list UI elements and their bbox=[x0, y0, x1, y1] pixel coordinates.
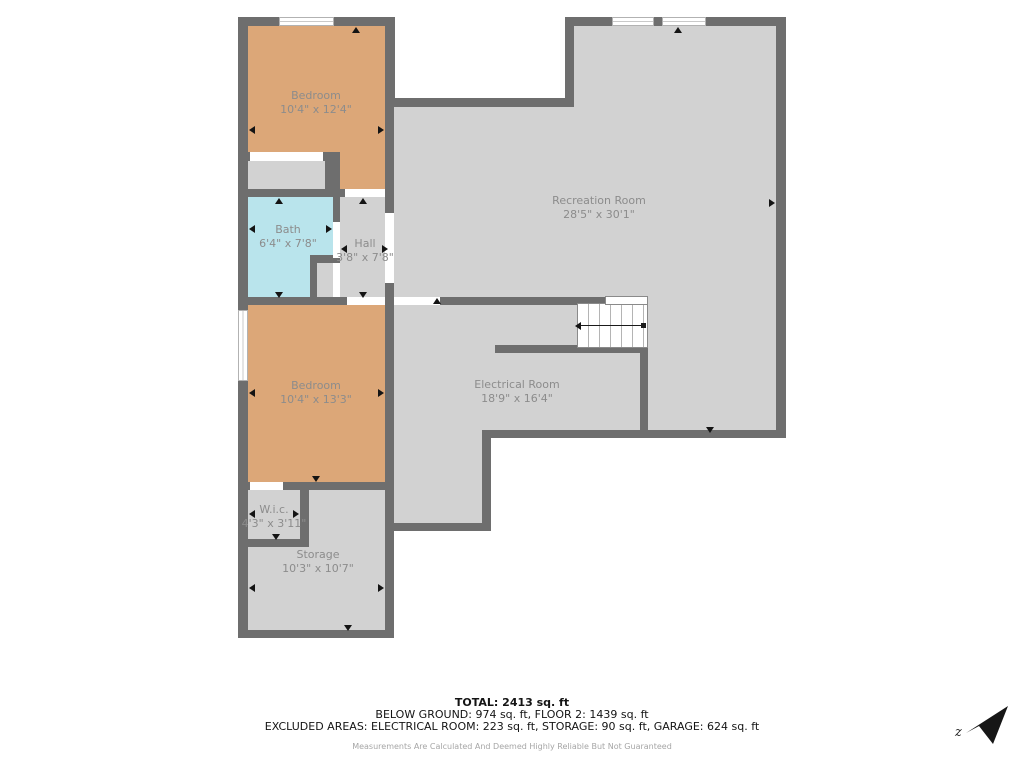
room-dims: 10'3" x 10'7" bbox=[282, 562, 354, 576]
measure-arrow-icon bbox=[249, 584, 255, 592]
closet-floor bbox=[247, 161, 325, 189]
stair-direction-arrow-icon bbox=[575, 322, 581, 330]
room-name: Bath bbox=[259, 223, 317, 237]
excluded-area-text: EXCLUDED AREAS: ELECTRICAL ROOM: 223 sq.… bbox=[0, 721, 1024, 733]
measure-arrow-icon bbox=[433, 298, 441, 304]
measure-arrow-icon bbox=[272, 534, 280, 540]
measure-arrow-icon bbox=[359, 292, 367, 298]
wall bbox=[776, 17, 786, 438]
measure-arrow-icon bbox=[352, 27, 360, 33]
measure-arrow-icon bbox=[378, 584, 384, 592]
room-dims: 10'4" x 12'4" bbox=[280, 103, 352, 117]
room-label-electrical-room: Electrical Room 18'9" x 16'4" bbox=[474, 378, 559, 406]
room-name: Electrical Room bbox=[474, 378, 559, 392]
measure-arrow-icon bbox=[674, 27, 682, 33]
room-label-bedroom-1: Bedroom 10'4" x 12'4" bbox=[280, 89, 352, 117]
measure-arrow-icon bbox=[326, 225, 332, 233]
measure-arrow-icon bbox=[249, 126, 255, 134]
measure-arrow-icon bbox=[378, 389, 384, 397]
measure-arrow-icon bbox=[249, 225, 255, 233]
room-dims: 3'8" x 7'8" bbox=[336, 251, 394, 265]
stair-direction-line bbox=[581, 325, 643, 326]
room-name: W.i.c. bbox=[242, 503, 307, 517]
room-name: Bedroom bbox=[280, 89, 352, 103]
wall bbox=[238, 297, 347, 305]
wall bbox=[238, 539, 309, 547]
measure-arrow-icon bbox=[706, 427, 714, 433]
stair-landing bbox=[605, 296, 648, 305]
wall bbox=[385, 98, 574, 107]
room-dims: 10'4" x 13'3" bbox=[280, 393, 352, 407]
wall bbox=[640, 348, 648, 438]
mini-closet-floor bbox=[317, 263, 333, 297]
window bbox=[279, 17, 334, 26]
room-name: Hall bbox=[336, 237, 394, 251]
door-opening bbox=[250, 152, 323, 161]
measure-arrow-icon bbox=[359, 198, 367, 204]
room-dims: 4'3" x 3'11" bbox=[242, 517, 307, 531]
measure-arrow-icon bbox=[378, 126, 384, 134]
measure-arrow-icon bbox=[249, 389, 255, 397]
measure-arrow-icon bbox=[769, 199, 775, 207]
room-label-recreation-room: Recreation Room 28'5" x 30'1" bbox=[552, 194, 646, 222]
door-opening bbox=[347, 297, 385, 305]
measure-arrow-icon bbox=[312, 476, 320, 482]
recreation-room-floor bbox=[574, 26, 776, 430]
wall bbox=[238, 630, 394, 638]
measure-arrow-icon bbox=[344, 625, 352, 631]
floor-plan-page: Bedroom 10'4" x 12'4" Recreation Room 28… bbox=[0, 0, 1024, 768]
room-name: Recreation Room bbox=[552, 194, 646, 208]
measure-arrow-icon bbox=[275, 292, 283, 298]
wall bbox=[488, 430, 786, 438]
room-dims: 6'4" x 7'8" bbox=[259, 237, 317, 251]
disclaimer-text: Measurements Are Calculated And Deemed H… bbox=[0, 742, 1024, 752]
lower-nook-floor bbox=[394, 430, 482, 523]
compass-label: z bbox=[955, 725, 962, 740]
window bbox=[662, 17, 706, 26]
room-label-hall: Hall 3'8" x 7'8" bbox=[336, 237, 394, 265]
wall bbox=[385, 17, 395, 107]
window bbox=[238, 310, 248, 381]
wall bbox=[482, 430, 491, 531]
room-name: Storage bbox=[282, 548, 354, 562]
stair-direction-end bbox=[641, 323, 646, 328]
wall bbox=[565, 17, 574, 107]
window bbox=[612, 17, 654, 26]
room-dims: 18'9" x 16'4" bbox=[474, 392, 559, 406]
room-label-bath: Bath 6'4" x 7'8" bbox=[259, 223, 317, 251]
room-name: Bedroom bbox=[280, 379, 352, 393]
door-opening bbox=[345, 189, 385, 197]
room-label-bedroom-2: Bedroom 10'4" x 13'3" bbox=[280, 379, 352, 407]
wall bbox=[238, 189, 345, 197]
door-opening bbox=[250, 482, 283, 490]
room-dims: 28'5" x 30'1" bbox=[552, 208, 646, 222]
wall bbox=[385, 107, 394, 638]
measure-arrow-icon bbox=[275, 198, 283, 204]
wall bbox=[385, 523, 491, 531]
room-label-wic: W.i.c. 4'3" x 3'11" bbox=[242, 503, 307, 531]
room-label-storage: Storage 10'3" x 10'7" bbox=[282, 548, 354, 576]
wall bbox=[333, 197, 340, 222]
area-summary: TOTAL: 2413 sq. ft BELOW GROUND: 974 sq.… bbox=[0, 697, 1024, 752]
